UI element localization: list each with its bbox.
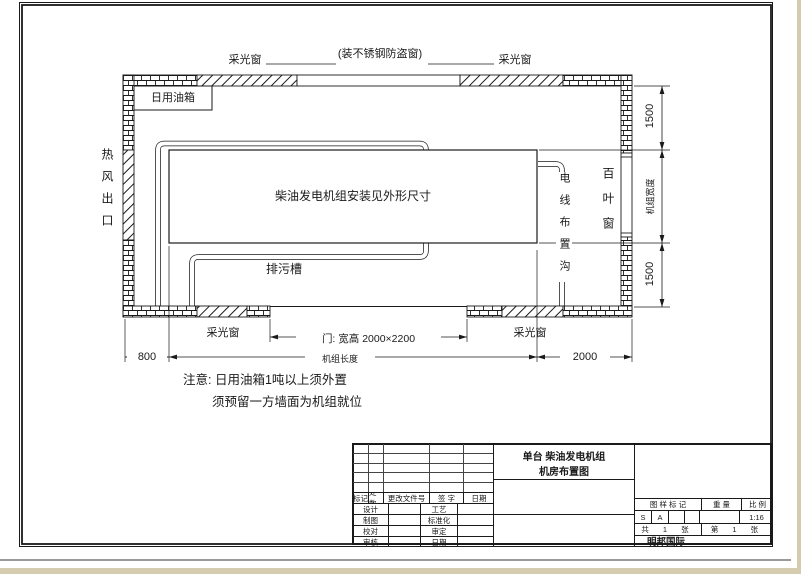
revision-header-row: 标记 处数 更改文件号 签 字 日期	[353, 493, 494, 504]
field-process	[458, 504, 494, 514]
note-line-1: 注意: 日用油箱1吨以上须外置	[183, 369, 347, 388]
field-date	[458, 537, 494, 547]
grid-line	[429, 444, 430, 492]
title-center-box-2	[493, 480, 635, 515]
stamp-header-weight: 重 量	[702, 499, 742, 510]
anti-theft-window-note: (装不锈钢防盗窗)	[320, 45, 440, 61]
title-block: 标记 处数 更改文件号 签 字 日期 设计 工艺 制图 标准化 校对	[352, 443, 772, 545]
dim-1500-top: 1500	[644, 96, 656, 136]
door-label: 门: 宽高 2000×2200	[296, 331, 441, 346]
company-name: 明邦国际	[635, 534, 685, 548]
wall-segment-window	[197, 306, 247, 317]
field-approve	[458, 526, 494, 536]
grid-line	[368, 444, 369, 492]
dim-unit-length: 机组长度	[305, 352, 375, 365]
label-draft: 制图	[353, 515, 389, 525]
wall-segment-brick	[621, 75, 632, 153]
page-rule-line	[0, 559, 791, 561]
stamp-header-row: 图 样 标 记 重 量 比 例	[635, 499, 773, 511]
stamp-header-mark: 图 样 标 记	[635, 499, 702, 510]
signature-table: 设计 工艺 制图 标准化 校对 审定 审核 日期	[353, 504, 494, 546]
revision-header-date: 日期	[464, 493, 494, 503]
wall-segment-window	[197, 75, 297, 86]
wall-segment-brick	[123, 75, 134, 150]
cable-trench-label: 电线布置沟	[556, 172, 572, 282]
revision-header-count: 处数	[369, 493, 384, 503]
label-process: 工艺	[421, 504, 458, 514]
wall-segment-brick	[563, 306, 632, 317]
label-design: 设计	[353, 504, 389, 514]
page-edge-bottom	[0, 568, 801, 574]
wall-segment-brick	[621, 237, 632, 317]
label-check: 校对	[353, 526, 389, 536]
dim-2000: 2000	[560, 351, 610, 363]
revision-header-file: 更改文件号	[384, 493, 430, 503]
grid-line	[353, 482, 493, 483]
stamp-area: 图 样 标 记 重 量 比 例 S A 1:16 共 1 张 第 1 张 明邦国…	[635, 444, 773, 545]
stamp-values-row: S A 1:16	[635, 511, 773, 524]
generator-label: 柴油发电机组安装见外形尺寸	[169, 150, 537, 243]
stamp-value-blank2	[685, 511, 700, 523]
stamp-value-s: S	[635, 511, 652, 523]
wall-segment-hot-air-opening	[123, 150, 134, 240]
wall-segment-window-center	[297, 75, 460, 86]
label-review: 审核	[353, 537, 389, 547]
company-row: 明邦国际	[635, 536, 773, 546]
field-design	[389, 504, 421, 514]
dim-800: 800	[127, 351, 167, 363]
fuel-tank-label: 日用油箱	[134, 86, 212, 110]
revision-table	[353, 444, 494, 493]
field-check	[389, 526, 421, 536]
wall-segment-louver	[621, 153, 632, 237]
field-draft	[389, 515, 421, 525]
wall-segment-brick	[247, 306, 270, 317]
wall-segment-window	[460, 75, 563, 86]
note-line-2: 须预留一方墙面为机组就位	[212, 391, 362, 410]
grid-line	[383, 444, 384, 492]
hot-air-outlet-label: 热风出口	[99, 148, 116, 236]
stamp-header-scale: 比 例	[742, 499, 773, 510]
grid-line	[353, 463, 493, 464]
stamp-value-a: A	[652, 511, 669, 523]
dim-1500-bottom: 1500	[644, 254, 656, 294]
skylight-label-bottom-right: 采光窗	[500, 324, 560, 340]
wall-segment-brick	[123, 306, 197, 317]
field-standard	[458, 515, 494, 525]
stamp-weight-value	[700, 511, 740, 523]
wall-segment-brick	[467, 306, 502, 317]
skylight-label-top-left: 采光窗	[215, 51, 275, 67]
drawing-title-line2: 机房布置图	[494, 463, 634, 478]
drain-trough-label: 排污槽	[249, 260, 319, 277]
dim-unit-width: 机组宽度	[644, 173, 657, 221]
drawing-sheet: 采光窗 (装不锈钢防盗窗) 采光窗 日用油箱 热风出口 柴油发电机组安装见外形尺…	[0, 0, 801, 574]
title-center-box-3	[493, 515, 635, 546]
revision-header-mark: 标记	[353, 493, 369, 503]
label-standard: 标准化	[421, 515, 458, 525]
page-edge-right	[797, 0, 801, 574]
wall-segment-window	[502, 306, 563, 317]
stamp-empty-box	[635, 444, 773, 499]
skylight-label-bottom-left: 采光窗	[193, 324, 253, 340]
grid-line	[353, 453, 493, 454]
label-approve: 审定	[421, 526, 458, 536]
stamp-scale-value: 1:16	[740, 511, 773, 523]
louver-window-label: 百叶窗	[600, 167, 617, 242]
skylight-label-top-right: 采光窗	[485, 51, 545, 67]
grid-line	[463, 444, 464, 492]
sheet-number: 第 1 张	[702, 524, 773, 535]
drawing-title-box: 单台 柴油发电机组 机房布置图	[493, 444, 635, 480]
drawing-title-line1: 单台 柴油发电机组	[494, 448, 634, 463]
label-date: 日期	[421, 537, 458, 547]
revision-header-sign: 签 字	[430, 493, 464, 503]
field-review	[389, 537, 421, 547]
wall-segment-brick	[123, 240, 134, 317]
grid-line	[353, 472, 493, 473]
stamp-value-blank1	[669, 511, 685, 523]
